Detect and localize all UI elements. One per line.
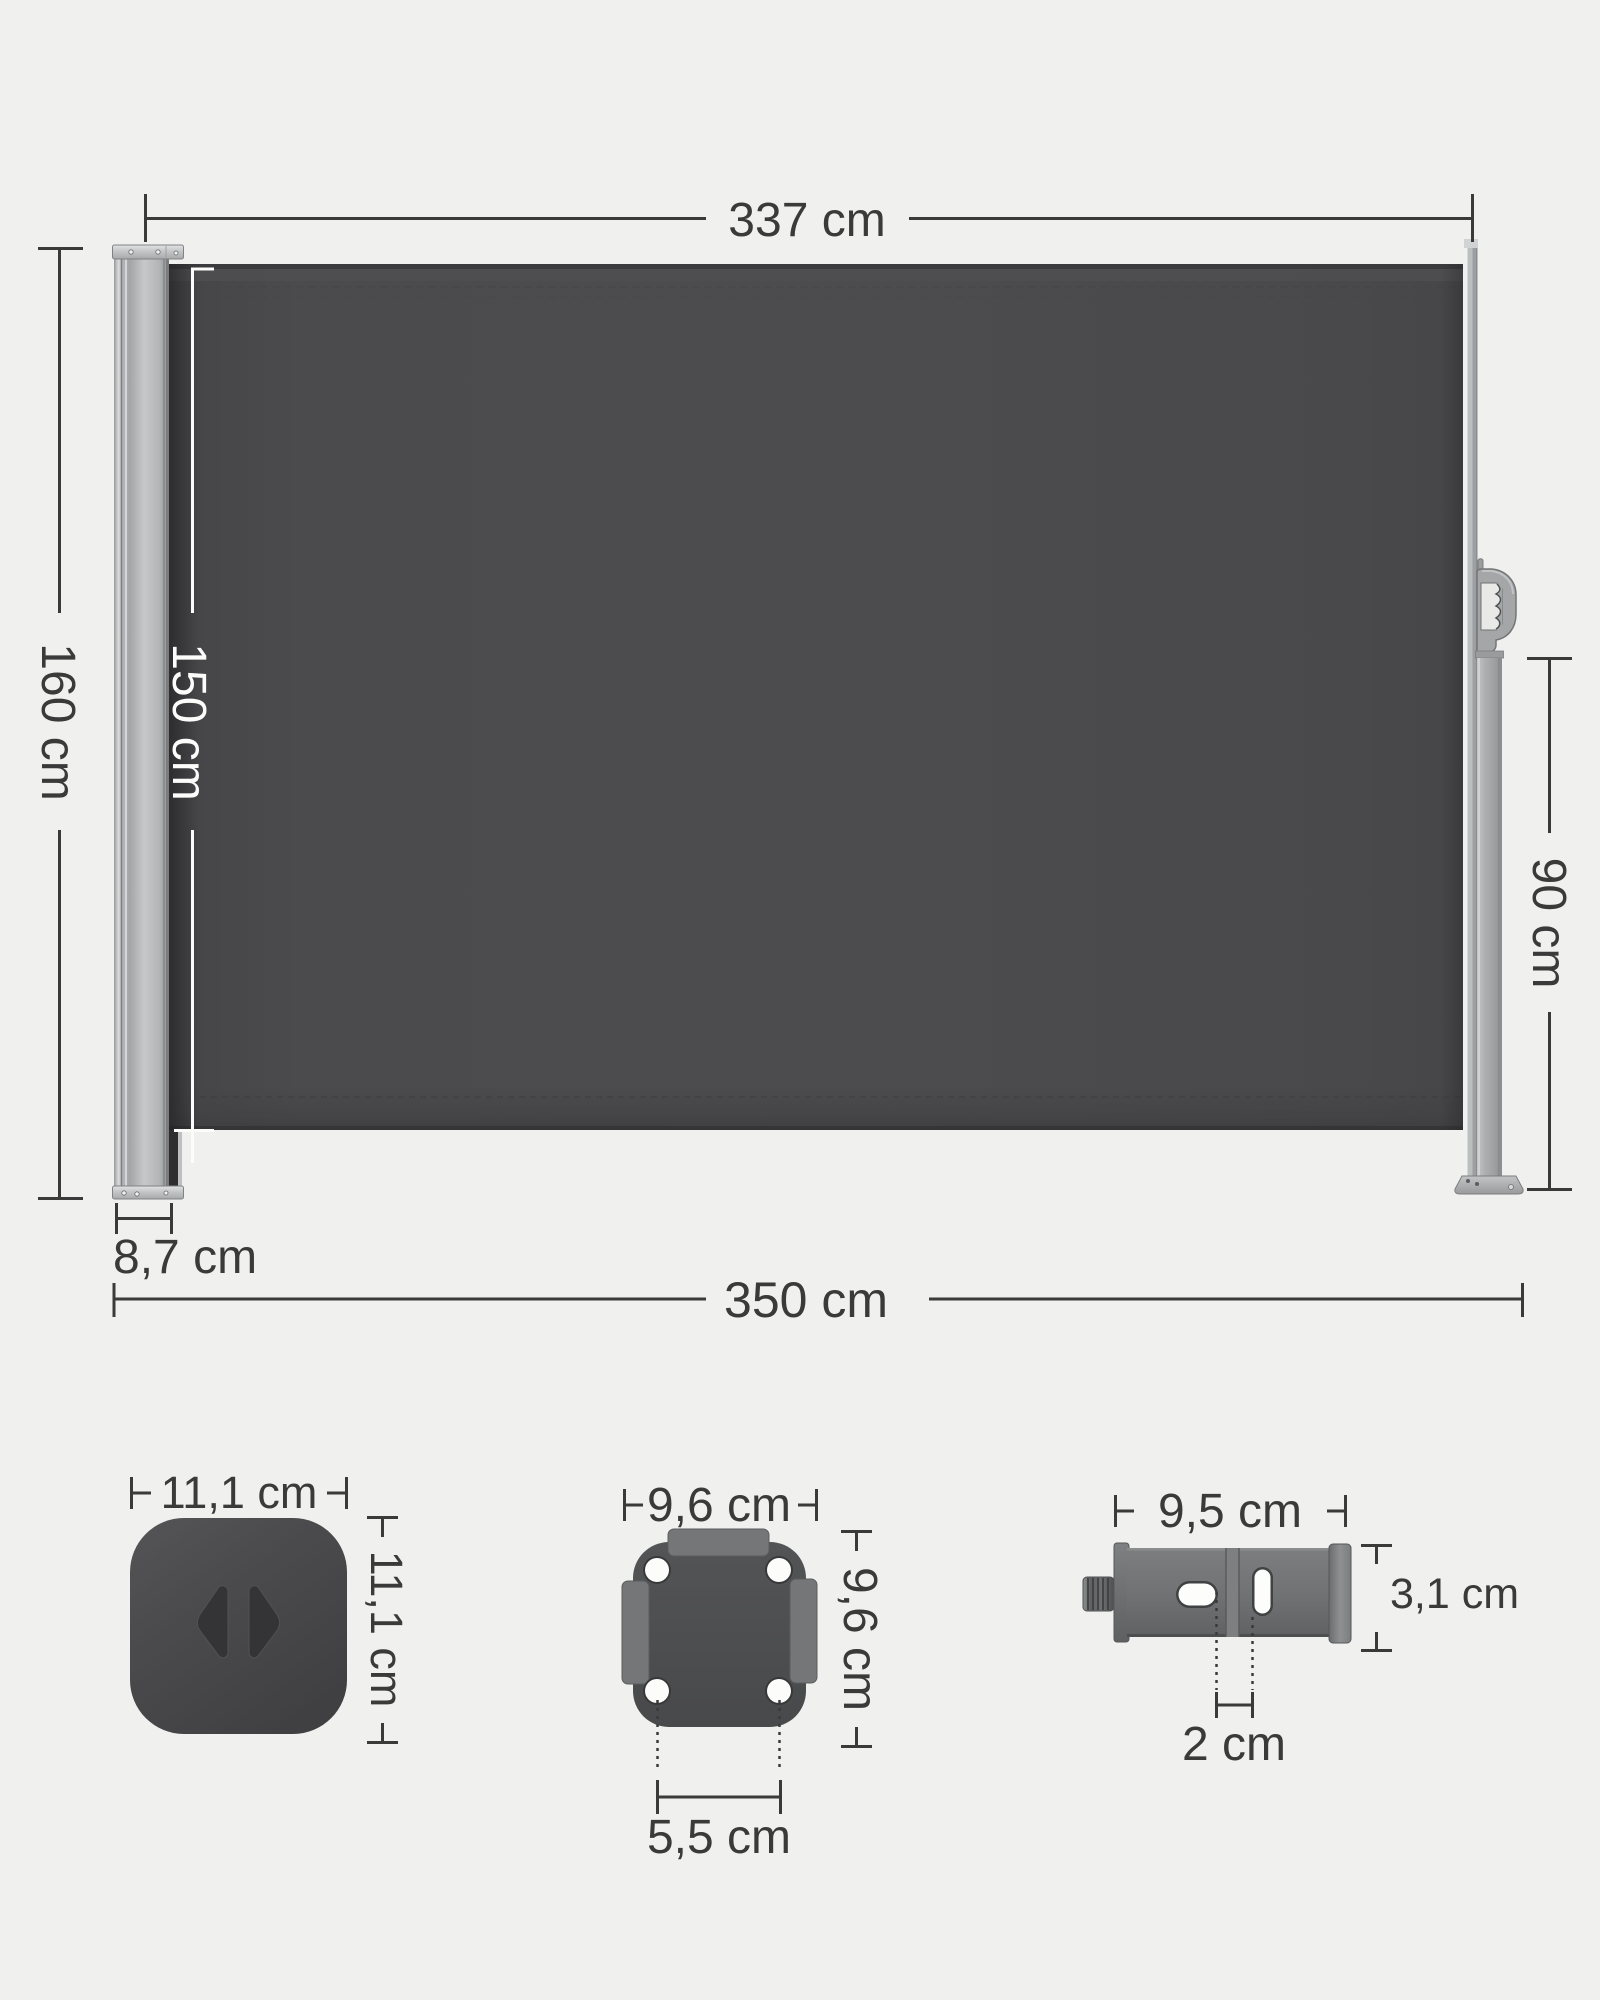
svg-text:5,5 cm: 5,5 cm [647,1811,791,1864]
svg-text:2 cm: 2 cm [1182,1718,1286,1771]
svg-text:9,5 cm: 9,5 cm [1158,1485,1302,1538]
svg-text:11,1 cm: 11,1 cm [161,1467,318,1518]
svg-text:350 cm: 350 cm [724,1272,888,1328]
svg-text:90 cm: 90 cm [1522,858,1575,989]
svg-text:9,6 cm: 9,6 cm [647,1479,791,1532]
svg-text:9,6 cm: 9,6 cm [833,1567,886,1711]
svg-text:8,7 cm: 8,7 cm [113,1231,257,1284]
svg-text:3,1 cm: 3,1 cm [1390,1570,1519,1618]
svg-text:150 cm: 150 cm [162,643,215,800]
svg-text:11,1 cm: 11,1 cm [361,1551,412,1708]
svg-text:337 cm: 337 cm [728,194,885,247]
svg-text:160 cm: 160 cm [31,643,84,800]
